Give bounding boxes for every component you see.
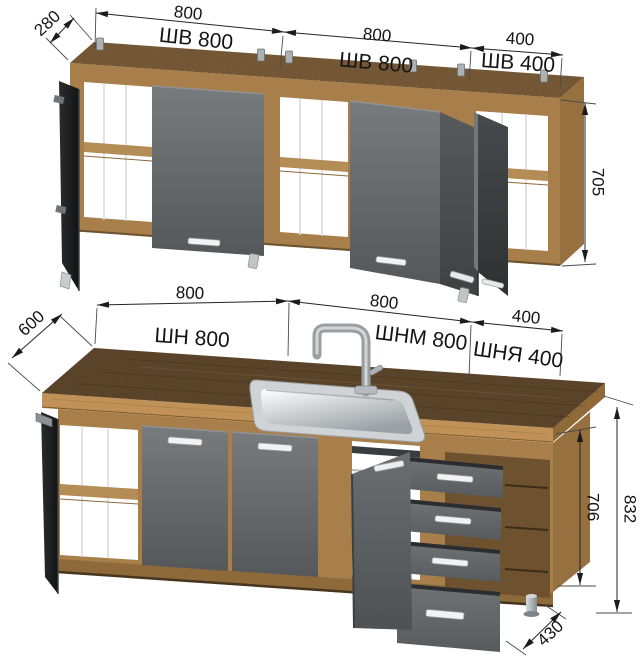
extension-line — [506, 641, 526, 655]
extension-line — [46, 38, 68, 60]
extension-line — [60, 316, 92, 346]
extension-line — [469, 325, 471, 378]
hinge-tab — [248, 253, 259, 268]
base-width-dim-3: 400 — [511, 306, 541, 328]
wall-cabinet-1-open-door — [59, 81, 79, 291]
wall-width-dim-1: 800 — [173, 2, 203, 24]
base-total-height-dim: 832 — [621, 495, 640, 523]
leg-foot — [524, 611, 540, 617]
mounting-bracket-icon — [258, 49, 265, 61]
mounting-bracket-icon — [286, 51, 293, 63]
dim-arrow-icon — [460, 44, 472, 50]
wall-cabinet-3-door-edge — [474, 112, 478, 272]
wall-height-dim: 705 — [589, 168, 608, 196]
extension-line — [604, 396, 633, 405]
sink-cabinet-open-door — [352, 452, 412, 630]
base-width-dim-2: 800 — [369, 291, 399, 313]
bifold-door-panel-b — [440, 112, 478, 296]
base-cabinet-1-open-door — [41, 412, 58, 594]
dim-arrow-icon — [272, 28, 284, 34]
dim-arrow-icon — [472, 320, 484, 326]
leg-top — [526, 594, 537, 598]
extension-line — [288, 303, 289, 356]
base-cabinets-row — [36, 328, 605, 652]
faucet-base — [355, 386, 377, 394]
leg-shaft — [526, 596, 537, 613]
extension-line — [562, 264, 596, 266]
dim-arrow-icon — [582, 250, 588, 262]
dim-arrow-icon — [288, 299, 300, 305]
wall-right-side — [560, 77, 584, 266]
dim-arrow-icon — [577, 573, 583, 585]
wall-cabinets-row — [53, 38, 584, 303]
wall-width-dim-3: 400 — [505, 29, 535, 50]
dim-arrow-icon — [460, 318, 472, 324]
base-height-dim: 706 — [584, 493, 603, 521]
wall-depth-dim: 280 — [30, 7, 64, 40]
wall-cabinet-1-door — [152, 86, 264, 256]
wall-cabinet-3-open-door — [478, 114, 508, 296]
extension-line — [8, 363, 40, 391]
base-door-2 — [232, 432, 318, 577]
dim-arrow-icon — [614, 600, 620, 612]
wall-width-dim-2: 800 — [362, 24, 392, 45]
extension-line — [95, 8, 96, 48]
dim-arrow-icon — [96, 11, 108, 17]
mounting-bracket-icon — [97, 38, 104, 50]
base-depth-dim: 600 — [14, 307, 48, 340]
base-door-1 — [142, 426, 228, 571]
base-cabinet-2-label: ШНМ 800 — [374, 321, 469, 355]
kitchen-drawing: 280 800 ШВ 800 800 ШВ 800 400 ШВ 400 705… — [0, 0, 640, 656]
extension-line — [95, 308, 97, 344]
base-bottom-depth-dim: 430 — [533, 617, 567, 650]
bifold-door-panel-a — [350, 101, 440, 284]
dim-arrow-icon — [97, 302, 109, 308]
base-width-dim-1: 800 — [176, 283, 205, 303]
dim-arrow-icon — [551, 327, 563, 333]
dim-arrow-icon — [284, 30, 296, 36]
drawer-stack — [397, 457, 503, 652]
hinge-tab — [60, 272, 71, 289]
base-cabinet-1-label: ШН 800 — [154, 324, 231, 352]
base-cabinet-3-label: ШНЯ 400 — [472, 337, 565, 372]
dim-arrow-icon — [276, 298, 288, 304]
mounting-bracket-icon — [458, 64, 465, 76]
dim-arrow-icon — [614, 407, 620, 419]
